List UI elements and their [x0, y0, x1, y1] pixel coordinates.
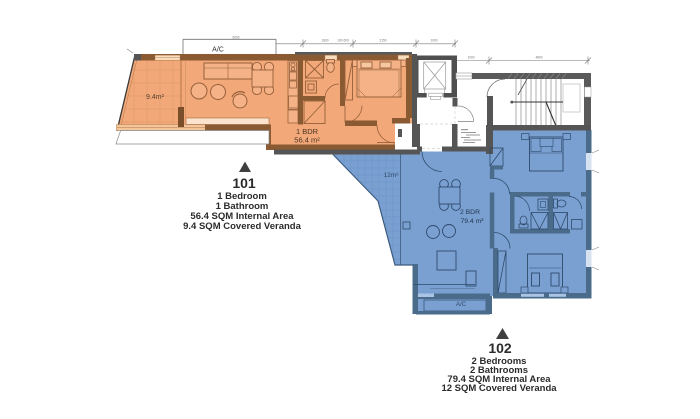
svg-text:79.4 m²: 79.4 m²	[460, 218, 484, 225]
svg-text:101: 101	[232, 175, 256, 191]
svg-text:102: 102	[488, 340, 512, 356]
svg-text:A/C: A/C	[456, 302, 467, 308]
svg-text:2 BDR: 2 BDR	[460, 209, 480, 216]
svg-text:1800: 1800	[321, 39, 328, 43]
svg-text:2150: 2150	[379, 39, 386, 43]
svg-text:56.4 m²: 56.4 m²	[294, 136, 320, 145]
svg-text:12 SQM Covered Veranda: 12 SQM Covered Veranda	[441, 383, 557, 394]
svg-text:A/C: A/C	[212, 47, 224, 54]
svg-text:12m²: 12m²	[384, 172, 400, 179]
svg-text:100 600: 100 600	[337, 39, 349, 43]
svg-text:5000: 5000	[232, 36, 239, 40]
svg-text:9.4 SQM Covered Veranda: 9.4 SQM Covered Veranda	[183, 221, 301, 232]
svg-text:1000: 1000	[467, 56, 474, 60]
svg-text:1000: 1000	[430, 39, 437, 43]
svg-text:4800: 4800	[535, 56, 542, 60]
svg-text:9.4m²: 9.4m²	[146, 94, 165, 101]
